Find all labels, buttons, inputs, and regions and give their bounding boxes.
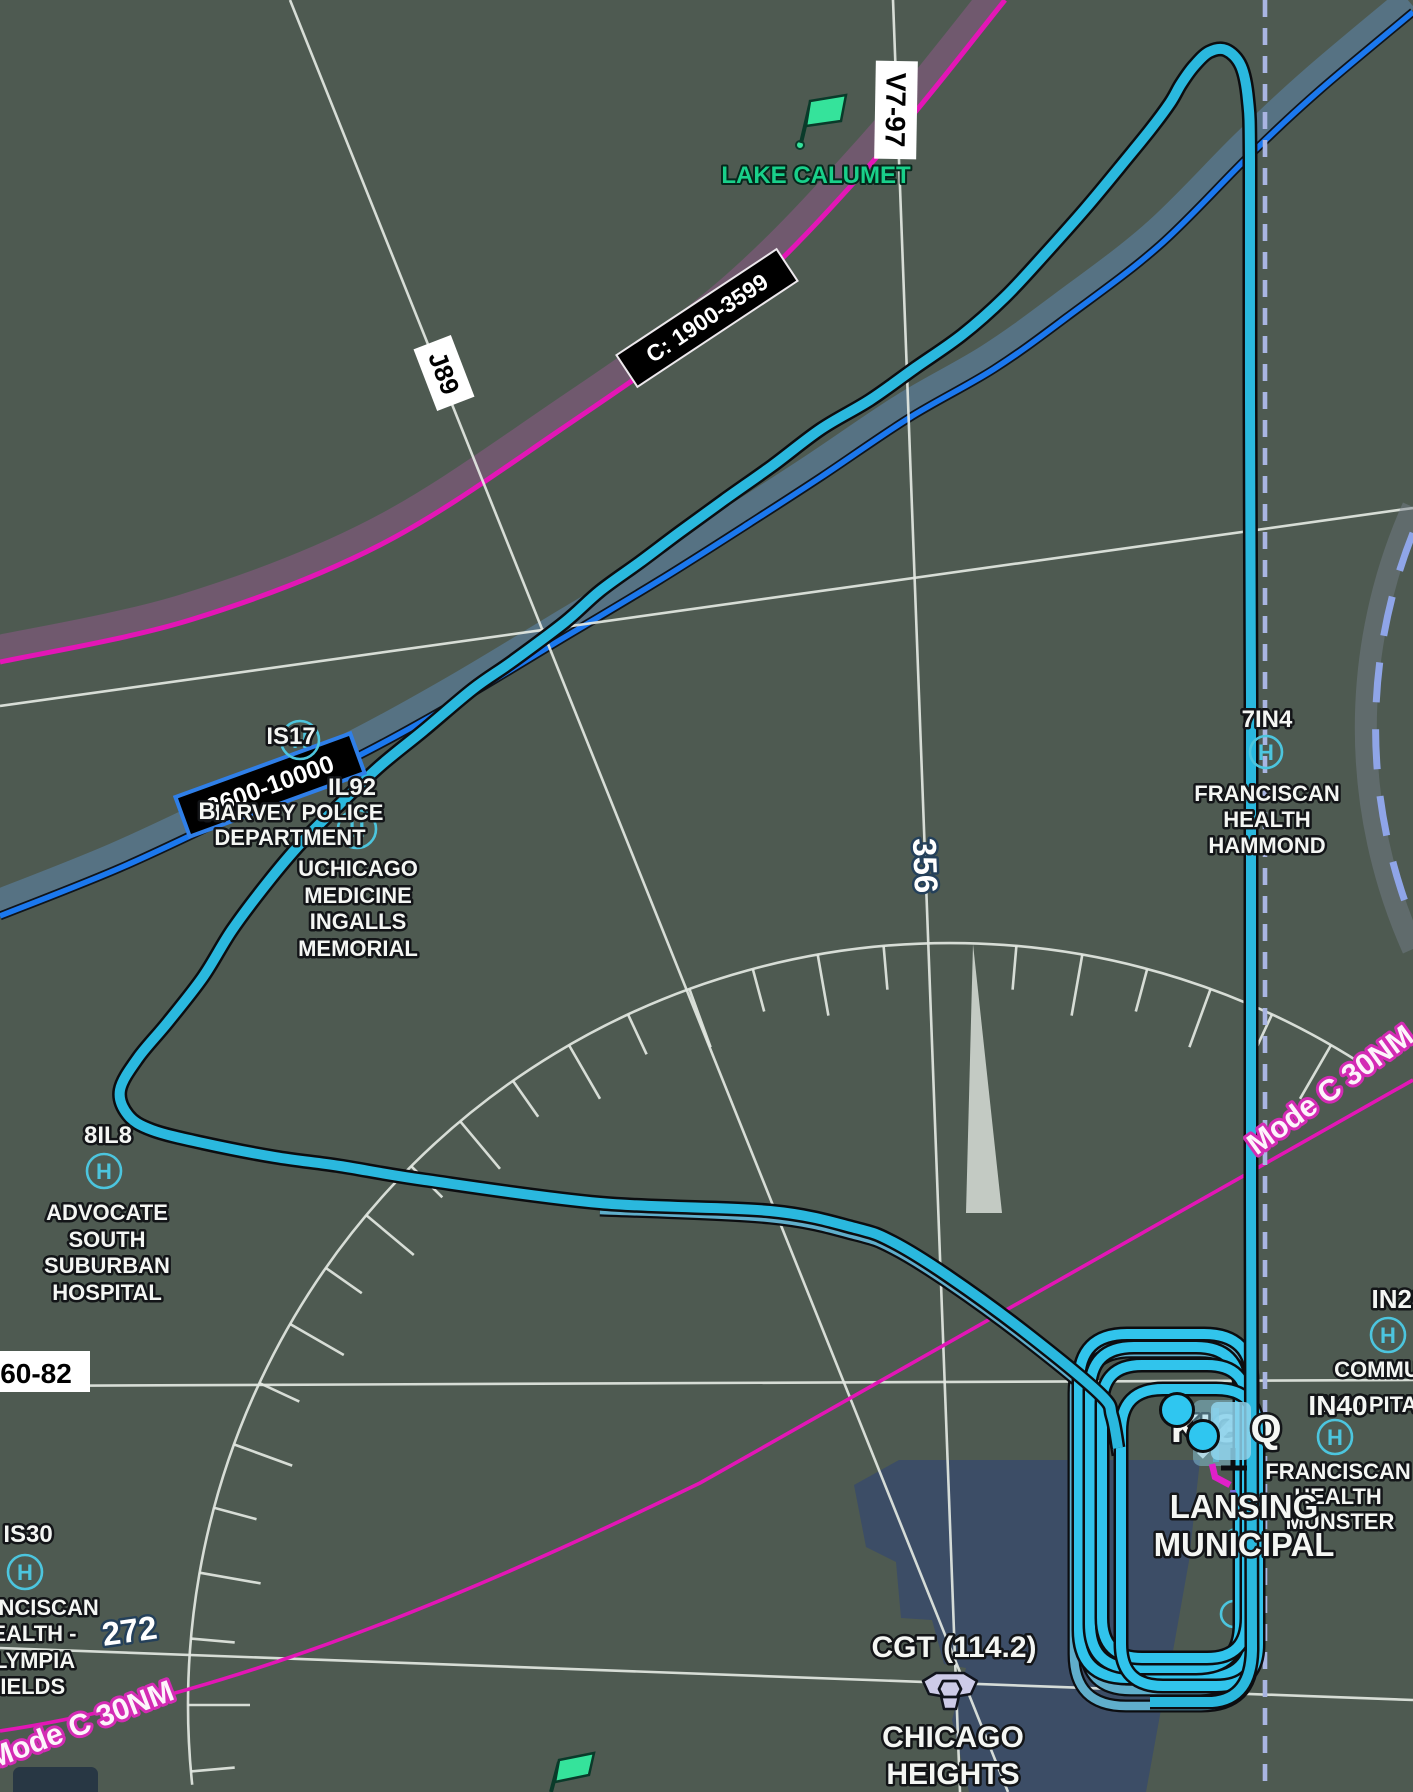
svg-text:8IL8: 8IL8 [84,1122,132,1149]
svg-text:IL92: IL92 [328,774,376,801]
svg-text:FRANCISCAN: FRANCISCAN [0,1595,99,1620]
svg-text:V7-97: V7-97 [879,72,911,147]
svg-text:OLYMPIA: OLYMPIA [0,1648,75,1673]
svg-text:H: H [96,1159,112,1184]
svg-text:H: H [1327,1425,1343,1450]
svg-text:60-82: 60-82 [0,1358,72,1389]
svg-text:HEALTH -: HEALTH - [0,1621,77,1646]
svg-text:272: 272 [100,1608,160,1652]
svg-text:INGALLS: INGALLS [310,909,407,934]
svg-text:ADVOCATE: ADVOCATE [46,1200,168,1225]
svg-text:CHICAGO: CHICAGO [882,1721,1024,1754]
svg-text:MUNICIPAL: MUNICIPAL [1154,1526,1335,1563]
svg-text:SUBURBAN: SUBURBAN [44,1253,170,1278]
svg-text:Q: Q [1250,1407,1281,1451]
svg-text:FRANCISCAN: FRANCISCAN [1265,1459,1410,1484]
svg-text:B: B [198,798,215,825]
svg-text:IN40: IN40 [1308,1390,1367,1421]
svg-text:SOUTH: SOUTH [69,1227,146,1252]
svg-text:FIELDS: FIELDS [0,1674,65,1699]
svg-text:H: H [1258,740,1274,765]
svg-text:356: 356 [906,837,945,893]
svg-text:HAMMOND: HAMMOND [1208,833,1325,858]
svg-text:FRANCISCAN: FRANCISCAN [1194,781,1339,806]
svg-text:HOSPITAL: HOSPITAL [52,1280,162,1305]
svg-text:LANSING: LANSING [1170,1488,1319,1525]
svg-text:IS30: IS30 [3,1521,52,1548]
svg-text:HEALTH: HEALTH [1223,807,1311,832]
svg-text:7IN4: 7IN4 [1242,706,1293,733]
svg-text:H: H [17,1560,33,1585]
svg-text:HARVEY POLICE: HARVEY POLICE [205,800,384,825]
svg-text:DEPARTMENT: DEPARTMENT [214,825,366,850]
svg-text:IS17: IS17 [266,723,315,750]
svg-text:H: H [1380,1323,1396,1348]
svg-text:HEIGHTS: HEIGHTS [886,1758,1019,1791]
svg-text:IN28: IN28 [1372,1284,1413,1314]
svg-text:MEDICINE: MEDICINE [304,883,412,908]
svg-text:LAKE CALUMET: LAKE CALUMET [721,162,911,189]
svg-text:CGT (114.2): CGT (114.2) [871,1631,1036,1664]
svg-text:MEMORIAL: MEMORIAL [298,936,418,961]
svg-text:UCHICAGO: UCHICAGO [298,856,418,881]
svg-text:COMMUNITY: COMMUNITY [1334,1357,1413,1382]
